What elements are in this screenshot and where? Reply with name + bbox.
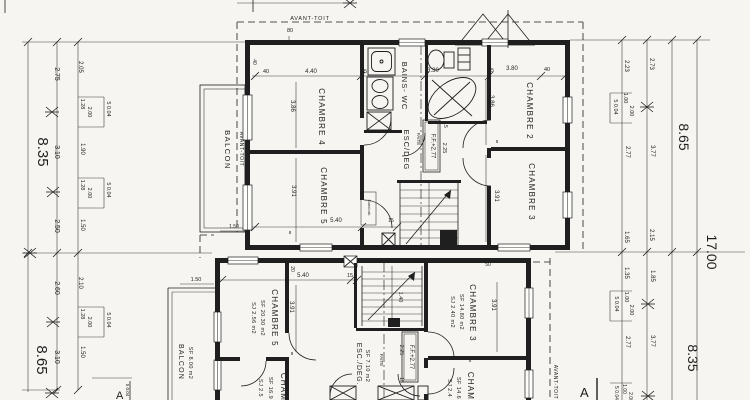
dim-label: 2.00 <box>628 106 634 117</box>
dim-label: 2.25 <box>398 345 404 356</box>
dim-label: 1.50 <box>79 346 85 358</box>
dim-label: 2.77 <box>624 336 630 348</box>
dim-label: 15 <box>442 122 448 128</box>
upper-level-box: F.F.+2.77 <box>423 120 440 172</box>
dimension-labels: 8.358.652.753.102.502.051.282.005 0.041.… <box>33 28 720 400</box>
dim-label: 40 <box>263 69 269 75</box>
lower-balcon-label: BALCON <box>177 344 184 380</box>
dim-label: 40 <box>544 67 550 73</box>
dim-label: 15 <box>347 273 353 279</box>
dim-label: 15 <box>361 69 367 75</box>
dim-label: 2.77 <box>624 146 630 158</box>
garde-robe-label: Gard.rob. <box>367 200 372 217</box>
dim-label: 5.40 <box>330 218 342 224</box>
dim-label: 2.00 <box>86 107 92 118</box>
dim-label: 1.00 <box>623 292 629 303</box>
dim-label: 2.75 <box>53 67 60 81</box>
dim-label: 5 0.04 <box>105 312 111 327</box>
dim-label: 5 0.04 <box>613 296 619 311</box>
dim-label: 8 <box>291 351 294 356</box>
dim-label: 1.28 <box>79 309 85 320</box>
lower-chambre3-sf: SF 14.80 m2 <box>458 294 464 330</box>
dim-label: 8 <box>496 139 499 144</box>
dim-label: 1.35 <box>623 267 629 279</box>
lower-room-bl-label: CHAM <box>279 373 288 400</box>
lower-room-bl-sj: SJ 2.5 <box>257 379 263 397</box>
dim-label: 3.77 <box>649 145 655 157</box>
section-letter-left: A <box>116 390 124 400</box>
shelf-icon <box>458 48 470 70</box>
upper-faite-label: FAITE <box>416 133 421 146</box>
upper-chambre5-label: CHAMBRE 5 <box>319 167 328 224</box>
dim-label: 1.50 <box>79 219 85 231</box>
shower-icon <box>368 48 395 75</box>
dim-label: 15 <box>398 377 404 383</box>
dim-label: 1.65 <box>623 231 629 243</box>
dim-label: 3.10 <box>53 350 60 364</box>
upper-level-label: F.F.+2.77 <box>430 134 436 159</box>
dim-label: 2.00 <box>86 188 92 199</box>
upper-chambre4-label: CHAMBRE 4 <box>317 88 326 145</box>
dim-label: 3.86 <box>289 100 295 112</box>
dim-label: 1.28 <box>79 99 85 110</box>
dim-label: 5 0.04 <box>105 101 111 116</box>
dim-label: 1.40 <box>397 292 403 303</box>
upper-chambre2-label: CHAMBRE 2 <box>525 82 534 139</box>
lower-chambre3-label: CHAMBRE 3 <box>468 284 477 341</box>
dim-label: 2.05 <box>77 61 83 73</box>
dim-label: 5 0.04 <box>105 182 111 197</box>
lower-room-br-sj: SJ 2.4 <box>446 379 452 397</box>
toilet-icon <box>428 50 454 70</box>
dim-label: 1.50 <box>191 277 202 283</box>
dim-label: 3.91 <box>493 190 499 202</box>
dim-label: 3.80 <box>506 66 518 72</box>
dim-label: 3.86 <box>488 95 494 107</box>
dim-label: 2.15 <box>648 229 654 241</box>
upper-stairs <box>382 180 461 247</box>
dim-label: 5 0.04 <box>125 384 130 397</box>
dim-label: 3.91 <box>490 299 496 311</box>
lower-chambre5-label: CHAMBRE 5 <box>270 289 279 346</box>
washer-icon <box>367 112 391 130</box>
dim-label: 1.00 <box>621 384 627 394</box>
dim-label: 3.91 <box>288 301 294 313</box>
dim-label: 5 0.04 <box>612 99 618 114</box>
dim-label: 3.77 <box>649 335 655 347</box>
dim-label: 40 <box>251 59 257 65</box>
floor-plan-drawing: AVANT-TOIT BALCON AVANT-TOIT <box>0 0 750 400</box>
lower-esc-deg-label: ESC./DEG. <box>355 343 362 386</box>
lower-balcon-area: SF 8.00 m2 <box>187 347 193 379</box>
lower-room-bl-sf: SF 16.9 <box>267 377 273 399</box>
upper-door-arcs <box>364 118 491 228</box>
dim-label: 3.10 <box>53 145 60 159</box>
dim-label: 20 <box>289 266 295 272</box>
floor-plan-scan: AVANT-TOIT BALCON AVANT-TOIT <box>0 0 750 400</box>
dim-label: 8.65 <box>676 123 692 150</box>
lower-chambre3-sj: SJ 2.40 m2 <box>449 296 455 328</box>
upper-chambre3-label: CHAMBRE 3 <box>527 163 536 220</box>
lower-stairs <box>362 266 422 327</box>
dim-label: 1.85 <box>649 270 655 282</box>
lower-room-br-sf: SF 14.6 <box>455 377 461 399</box>
washbasin-icon <box>367 77 393 110</box>
lower-chambre5-sj: SJ 2.56 m2 <box>250 302 256 334</box>
lower-balcony: BALCON SF 8.00 m2 <box>168 284 215 400</box>
scan-marks <box>5 0 357 13</box>
lower-chambre5-sf: SF 20.30 m2 <box>259 300 265 336</box>
dim-label: 2.23 <box>623 60 629 72</box>
dim-label: 2.50 <box>53 219 60 233</box>
dim-label: 15 <box>488 68 494 74</box>
lower-avant-toit-side-label: AVANT-TOIT <box>552 365 558 400</box>
dim-label: 50 <box>485 262 491 268</box>
dim-label: 1.90 <box>79 143 85 155</box>
dim-label: 5 0.04 <box>613 386 619 400</box>
left-dimension-chains <box>22 38 245 398</box>
dim-label: 2.10 <box>77 277 83 289</box>
lower-esc-deg-sf: SF 7.10 m2 <box>364 350 370 382</box>
avant-toit-top-label: AVANT-TOIT <box>290 16 329 22</box>
dim-label: 1.50 <box>229 224 239 230</box>
dim-label: 2.73 <box>648 58 654 70</box>
dim-label: 2.00 <box>628 305 634 316</box>
dim-label: 8.65 <box>33 345 50 374</box>
upper-balcony-label: BALCON <box>223 130 232 170</box>
section-letter-right: A <box>580 385 589 400</box>
lower-bathroom <box>330 386 428 400</box>
dim-label: 8 <box>289 230 292 235</box>
lower-floor-plan: AVANT-TOIT BALCON SF 8.00 m2 <box>168 235 558 400</box>
dim-label: 3.91 <box>290 185 296 197</box>
upper-floor-plan: AVANT-TOIT BALCON AVANT-TOIT <box>200 10 583 251</box>
dim-label: 3.30 <box>427 68 439 74</box>
dim-label: 2.00 <box>86 317 92 328</box>
dim-label: 80 <box>287 28 293 34</box>
dim-label: 2.25 <box>441 143 447 154</box>
dim-label: 8.35 <box>685 344 701 371</box>
dim-label: 1.00 <box>622 93 628 104</box>
dim-label: 4.40 <box>305 69 317 75</box>
upper-balcony: BALCON AVANT-TOIT <box>200 85 245 232</box>
dim-label: 15 <box>388 218 394 224</box>
lower-level-label: F.F.+2.77 <box>408 345 414 370</box>
dim-label: 5.40 <box>297 273 309 279</box>
bains-wc-label: BAINS- WC <box>400 62 409 111</box>
upper-esc-deg-label: ESC/DEG <box>402 130 411 171</box>
lower-level-box: F.F.+2.77 <box>402 332 418 382</box>
lower-room-br-label: CHAM <box>466 372 475 400</box>
dim-label: 2.60 <box>53 281 60 295</box>
dim-label: 2.00 <box>627 392 633 400</box>
lower-faite-label: FAITE <box>379 354 384 367</box>
dim-label: 17.00 <box>704 234 720 269</box>
dim-label: 1.28 <box>79 180 85 191</box>
dim-label: 8.35 <box>34 137 51 166</box>
